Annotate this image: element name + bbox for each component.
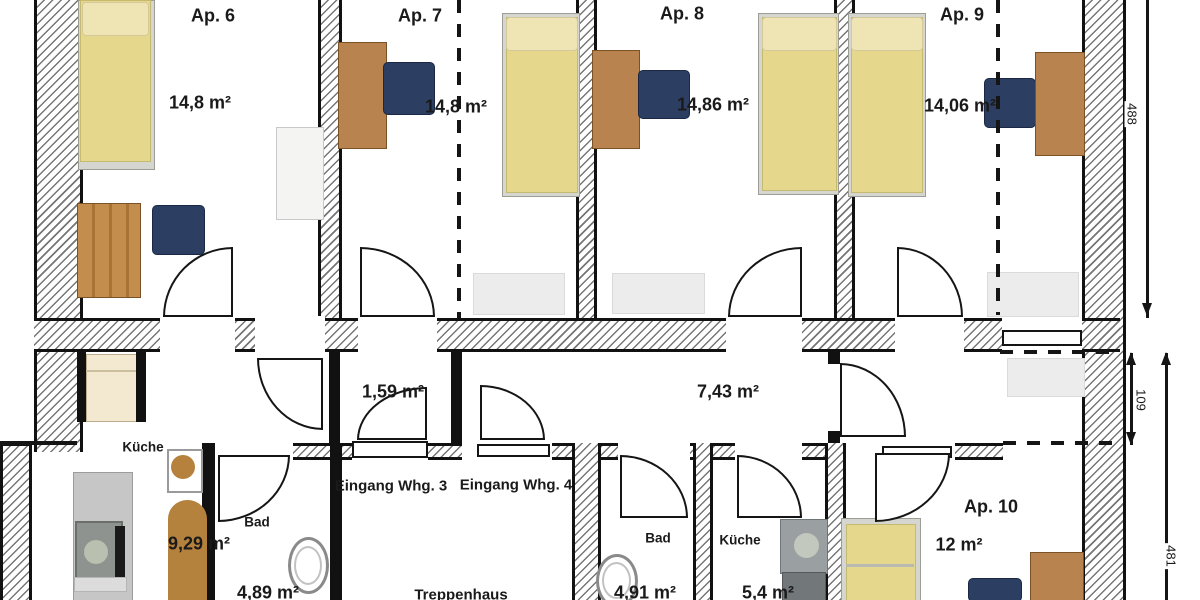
kitchen3-fridge-line	[86, 370, 136, 372]
stairwell-label: Treppenhaus	[414, 587, 507, 600]
ap6-wardrobe	[276, 127, 324, 220]
bath3-washbasin-inner	[294, 546, 322, 585]
kitchen3-area-label: 9,29 m²	[168, 534, 230, 555]
balcony-dashed-top	[1000, 350, 1115, 354]
wall-band-lower-6	[955, 443, 1003, 460]
corridor-door-right	[840, 363, 906, 437]
dim-arrow-488-bottom	[1142, 303, 1152, 316]
dim-arrow-109-top	[1126, 352, 1136, 365]
ap8-pillow	[762, 17, 837, 51]
wall-bath4-kitchen4	[693, 443, 713, 600]
bath4-area-label: 4,91 m²	[614, 583, 676, 600]
kitchen4-name-label: Küche	[719, 533, 760, 548]
entrance-whg3-label: Eingang Whg. 3	[335, 478, 448, 495]
ap7-area-label: 14,8 m²	[425, 97, 487, 118]
ap9-area-label: 14,06 m²	[924, 96, 996, 117]
bath3-door	[218, 455, 290, 522]
kitchen4-fridge-circle	[794, 533, 819, 558]
entrance-whg4-label: Eingang Whg. 4	[460, 477, 573, 494]
ap10-area-label: 12 m²	[935, 535, 982, 556]
ap6-door	[163, 247, 233, 317]
ap9-desk	[1035, 52, 1085, 156]
ap6-cabinet	[77, 203, 141, 298]
ap9-name-label: Ap. 9	[940, 5, 984, 26]
kitchen3-sink-band	[74, 577, 127, 592]
wall-band-lower-2	[428, 443, 462, 460]
ap10-desk	[1030, 552, 1084, 600]
dim-arrow-109-bottom	[1126, 432, 1136, 445]
hall159-area-label: 1,59 m²	[362, 382, 424, 403]
dashed-line-ap9	[996, 0, 1000, 315]
ap7-radiator	[473, 273, 565, 315]
opening-ap6	[160, 316, 235, 354]
ap6-chair	[152, 205, 205, 255]
wall-outer-right	[1082, 0, 1126, 600]
corridor-door-left	[480, 385, 545, 440]
ap7-door	[360, 247, 435, 317]
ap9-radiator	[987, 272, 1079, 317]
ap8-radiator	[612, 273, 705, 314]
ap10-bed	[846, 524, 916, 600]
kitchen3-niche-left	[77, 352, 86, 422]
opening-kitchen	[255, 316, 325, 354]
ap8-desk	[592, 50, 640, 149]
bath3-name-label: Bad	[244, 515, 270, 530]
dim-label-488: 488	[1125, 101, 1140, 127]
wall-corridor-right-stub-bottom	[828, 431, 840, 443]
opening-ap9	[895, 316, 964, 354]
wall-outer-left-lower	[0, 443, 32, 600]
kitchen3-door	[257, 358, 323, 430]
entrance-door-whg4	[477, 444, 550, 457]
opening-ap7	[358, 316, 437, 354]
ap10-chair	[968, 578, 1022, 600]
ap8-door	[728, 247, 802, 317]
opening-ap8	[726, 316, 802, 354]
ap10-door	[875, 453, 950, 522]
ap9-pillow	[851, 17, 923, 51]
balcony-slab	[1007, 358, 1085, 397]
kitchen3-counter-bar	[115, 526, 125, 579]
kitchen4-area-label: 5,4 m²	[742, 583, 794, 600]
bath4-door	[620, 455, 688, 518]
bath3-area-label: 4,89 m²	[237, 583, 299, 600]
ap7-name-label: Ap. 7	[398, 6, 442, 27]
wall-step-line	[0, 441, 77, 445]
wall-hall159-right	[451, 352, 462, 443]
ap8-name-label: Ap. 8	[660, 4, 704, 25]
ap6-pillow	[82, 2, 149, 36]
dashed-line-ap7	[457, 0, 461, 318]
entrance-door-whg3	[352, 441, 428, 458]
wall-bath3-stair	[330, 443, 342, 600]
dim-line-488	[1146, 0, 1149, 318]
kitchen3-niche-right	[136, 352, 146, 422]
kitchen3-chair-seat	[171, 455, 195, 479]
balcony-window-leaf	[1002, 330, 1082, 346]
kitchen4-door	[737, 455, 802, 518]
wall-outer-left	[34, 0, 83, 452]
ap8-area-label: 14,86 m²	[677, 95, 749, 116]
corridor-area-label: 7,43 m²	[697, 382, 759, 403]
ap9-door	[897, 247, 963, 317]
floor-plan: Ap. 6 14,8 m² Ap. 7 14,8 m² Ap. 8 14,86 …	[0, 0, 1200, 600]
ap6-name-label: Ap. 6	[191, 6, 235, 27]
dim-label-481: 481	[1164, 543, 1179, 569]
wall-hall159-left	[329, 352, 340, 443]
ap7-pillow	[506, 17, 578, 51]
kitchen3-name-label: Küche	[122, 440, 163, 455]
wall-corridor-right-stub-top	[828, 352, 840, 364]
wall-band-lower-1	[293, 443, 352, 460]
ap6-area-label: 14,8 m²	[169, 93, 231, 114]
balcony-dashed-bottom	[1003, 441, 1115, 445]
dim-label-109: 109	[1134, 387, 1149, 413]
ap10-name-label: Ap. 10	[964, 497, 1018, 518]
kitchen3-fridge	[86, 354, 138, 422]
ap7-desk	[338, 42, 387, 149]
ap10-bed-divider	[846, 564, 914, 567]
bath4-name-label: Bad	[645, 531, 671, 546]
dim-arrow-481-top	[1161, 352, 1171, 365]
kitchen3-stove-burner	[84, 540, 108, 564]
